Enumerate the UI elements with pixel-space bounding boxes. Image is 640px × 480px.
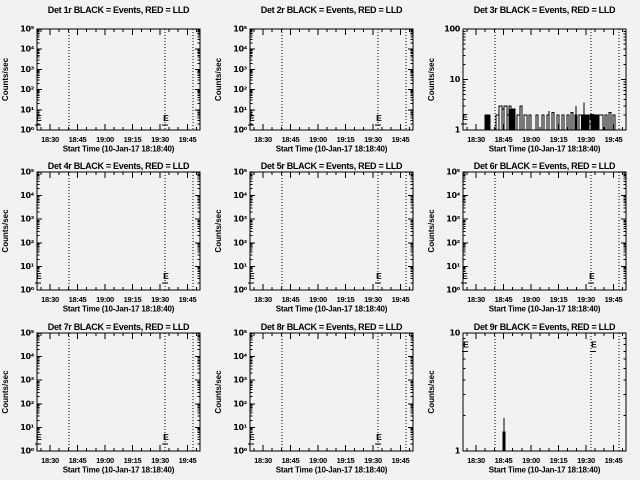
y-tick-label: 10⁵	[446, 168, 461, 177]
y-tick-label: 10⁰	[233, 447, 248, 456]
x-tick-label: 18:30	[467, 456, 485, 465]
eclipse-marker-label: E	[163, 271, 169, 281]
eclipse-marker: E	[248, 432, 255, 444]
y-axis-label: Counts/sec	[427, 209, 436, 253]
eclipse-marker-label: E	[36, 432, 42, 442]
x-tick-label: 19:30	[364, 456, 382, 465]
x-tick-label: 18:45	[69, 295, 87, 304]
eclipse-marker: E	[590, 339, 597, 351]
y-tick-label: 10	[449, 75, 460, 84]
eclipse-marker: E	[461, 271, 468, 283]
panel-title: Det 1r BLACK = Events, RED = LLD	[48, 5, 190, 15]
x-tick-label: 19:30	[364, 135, 382, 144]
events-filled-block	[509, 109, 515, 130]
x-tick-label: 19:30	[151, 295, 169, 304]
panel-title: Det 2r BLACK = Events, RED = LLD	[261, 5, 403, 15]
y-tick-label: 10⁰	[20, 447, 35, 456]
x-tick-label: 19:15	[124, 295, 142, 304]
x-axis-label: Start Time (10-Jan-17 18:18:40)	[276, 145, 388, 154]
eclipse-marker: E	[35, 113, 42, 125]
y-tick-label: 10¹	[233, 423, 248, 432]
y-tick-label: 10⁴	[20, 45, 35, 54]
y-tick-label: 10⁵	[233, 25, 248, 34]
x-axis-label: Start Time (10-Jan-17 18:18:40)	[276, 305, 388, 314]
y-tick-label: 10⁴	[20, 191, 35, 200]
eclipse-marker-label: E	[376, 432, 382, 442]
x-tick-label: 18:30	[41, 456, 59, 465]
x-tick-label: 18:30	[41, 295, 59, 304]
x-tick-label: 18:45	[495, 135, 513, 144]
y-tick-label: 10³	[233, 65, 248, 74]
eclipse-marker: E	[162, 432, 169, 444]
eclipse-marker-label: E	[249, 113, 255, 123]
y-tick-label: 10⁵	[20, 25, 35, 34]
x-tick-label: 18:45	[282, 295, 300, 304]
y-tick-label: 10¹	[233, 105, 248, 114]
y-tick-label: 1	[455, 447, 461, 456]
eclipse-marker: E	[248, 113, 255, 125]
x-tick-label: 19:00	[522, 295, 540, 304]
x-tick-label: 19:15	[124, 456, 142, 465]
eclipse-marker-label: E	[376, 271, 382, 281]
y-tick-label: 10⁰	[233, 126, 248, 135]
eclipse-marker: E	[375, 113, 382, 125]
x-tick-label: 19:00	[96, 456, 114, 465]
y-tick-label: 10⁴	[233, 191, 248, 200]
x-tick-label: 19:00	[522, 135, 540, 144]
y-tick-label: 10³	[20, 65, 35, 74]
y-tick-label: 10¹	[233, 262, 248, 271]
x-tick-label: 19:45	[605, 135, 623, 144]
y-tick-label: 10³	[446, 215, 461, 224]
eclipse-marker: E	[162, 113, 169, 125]
eclipse-marker-label: E	[163, 113, 169, 123]
eclipse-marker-label: E	[463, 339, 469, 349]
y-tick-label: 10⁵	[233, 329, 248, 338]
x-tick-label: 19:00	[309, 456, 327, 465]
x-tick-label: 19:30	[364, 295, 382, 304]
x-tick-label: 19:00	[96, 135, 114, 144]
y-tick-label: 10³	[233, 376, 248, 385]
x-axis-label: Start Time (10-Jan-17 18:18:40)	[276, 466, 388, 475]
x-tick-label: 19:15	[550, 135, 568, 144]
panel-title: Det 4r BLACK = Events, RED = LLD	[48, 161, 190, 171]
panel-title: Det 3r BLACK = Events, RED = LLD	[474, 5, 616, 15]
plots-canvas: EEDet 1r BLACK = Events, RED = LLD18:301…	[0, 0, 640, 480]
y-tick-label: 10¹	[20, 262, 35, 271]
x-tick-label: 19:30	[577, 456, 595, 465]
y-tick-label: 10³	[20, 376, 35, 385]
panel-title: Det 5r BLACK = Events, RED = LLD	[261, 161, 403, 171]
y-tick-label: 10³	[233, 215, 248, 224]
x-tick-label: 19:15	[550, 295, 568, 304]
y-tick-label: 10⁰	[233, 286, 248, 295]
y-tick-label: 10⁵	[20, 168, 35, 177]
x-tick-label: 19:30	[577, 135, 595, 144]
y-tick-label: 10²	[233, 85, 248, 94]
y-tick-label: 1	[455, 126, 461, 135]
y-tick-label: 10²	[233, 399, 248, 408]
y-tick-label: 100	[444, 25, 461, 34]
y-tick-label: 10²	[20, 85, 35, 94]
eclipse-marker-label: E	[249, 432, 255, 442]
eclipse-marker: E	[588, 271, 595, 283]
x-tick-label: 18:30	[254, 456, 272, 465]
x-axis-label: Start Time (10-Jan-17 18:18:40)	[63, 145, 175, 154]
panel-title: Det 8r BLACK = Events, RED = LLD	[261, 322, 403, 332]
y-tick-label: 10	[449, 329, 460, 338]
eclipse-marker-label: E	[462, 112, 468, 122]
x-tick-label: 18:45	[282, 456, 300, 465]
eclipse-marker-label: E	[591, 339, 597, 349]
y-tick-label: 10⁴	[233, 45, 248, 54]
y-axis-label: Counts/sec	[214, 370, 223, 414]
panel-title: Det 9r BLACK = Events, RED = LLD	[474, 322, 616, 332]
y-tick-label: 10²	[20, 399, 35, 408]
eclipse-marker-label: E	[462, 271, 468, 281]
panel-det-3r: EEDet 3r BLACK = Events, RED = LLD18:301…	[427, 5, 626, 154]
y-axis-label: Counts/sec	[1, 209, 10, 253]
y-tick-label: 10³	[20, 215, 35, 224]
x-tick-label: 19:15	[124, 135, 142, 144]
y-tick-label: 10⁴	[233, 352, 248, 361]
x-tick-label: 19:30	[151, 456, 169, 465]
x-tick-label: 18:30	[254, 295, 272, 304]
panel-det-9r: EEDet 9r BLACK = Events, RED = LLD18:301…	[427, 322, 626, 475]
x-tick-label: 18:45	[69, 135, 87, 144]
eclipse-marker: E	[461, 112, 468, 124]
x-tick-label: 19:00	[309, 135, 327, 144]
eclipse-marker-label: E	[36, 271, 42, 281]
x-tick-label: 19:45	[179, 135, 197, 144]
panel-det-6r: EEDet 6r BLACK = Events, RED = LLD18:301…	[427, 161, 626, 314]
x-tick-label: 19:45	[605, 456, 623, 465]
panel-det-2r: EEDet 2r BLACK = Events, RED = LLD18:301…	[214, 5, 413, 154]
eclipse-marker: E	[35, 432, 42, 444]
y-axis-label: Counts/sec	[427, 370, 436, 414]
y-axis-label: Counts/sec	[214, 57, 223, 101]
x-tick-label: 19:45	[392, 456, 410, 465]
x-tick-label: 18:45	[69, 456, 87, 465]
x-tick-label: 18:30	[467, 295, 485, 304]
y-tick-label: 10⁴	[446, 191, 461, 200]
y-tick-label: 10⁵	[233, 168, 248, 177]
y-tick-label: 10⁵	[20, 329, 35, 338]
x-axis-label: Start Time (10-Jan-17 18:18:40)	[489, 305, 601, 314]
x-tick-label: 19:15	[337, 135, 355, 144]
x-tick-label: 18:30	[254, 135, 272, 144]
eclipse-marker-label: E	[376, 113, 382, 123]
eclipse-marker: E	[375, 271, 382, 283]
x-tick-label: 19:15	[337, 295, 355, 304]
y-tick-label: 10⁰	[20, 286, 35, 295]
x-tick-label: 18:45	[495, 295, 513, 304]
eclipse-marker-label: E	[589, 271, 595, 281]
x-tick-label: 19:30	[151, 135, 169, 144]
x-tick-label: 19:45	[179, 295, 197, 304]
eclipse-marker: E	[35, 271, 42, 283]
panel-title: Det 7r BLACK = Events, RED = LLD	[48, 322, 190, 332]
detector-rates-figure: EEDet 1r BLACK = Events, RED = LLD18:301…	[0, 0, 640, 480]
panel-det-5r: EEDet 5r BLACK = Events, RED = LLD18:301…	[214, 161, 413, 314]
panel-det-8r: EEDet 8r BLACK = Events, RED = LLD18:301…	[214, 322, 413, 475]
eclipse-marker-label: E	[249, 271, 255, 281]
eclipse-marker: E	[375, 432, 382, 444]
x-tick-label: 19:45	[392, 135, 410, 144]
events-filled-block	[485, 115, 490, 130]
x-tick-label: 19:45	[392, 295, 410, 304]
y-axis-label: Counts/sec	[427, 57, 436, 101]
y-axis-label: Counts/sec	[1, 370, 10, 414]
y-tick-label: 10²	[233, 238, 248, 247]
x-tick-label: 19:30	[577, 295, 595, 304]
x-axis-label: Start Time (10-Jan-17 18:18:40)	[63, 305, 175, 314]
y-tick-label: 10⁰	[446, 286, 461, 295]
y-tick-label: 10²	[20, 238, 35, 247]
eclipse-marker-label: E	[163, 432, 169, 442]
x-axis-label: Start Time (10-Jan-17 18:18:40)	[63, 466, 175, 475]
y-tick-label: 10¹	[20, 105, 35, 114]
panel-det-4r: EEDet 4r BLACK = Events, RED = LLD18:301…	[1, 161, 200, 314]
x-tick-label: 19:00	[522, 456, 540, 465]
panel-det-1r: EEDet 1r BLACK = Events, RED = LLD18:301…	[1, 5, 200, 154]
x-tick-label: 19:15	[337, 456, 355, 465]
y-tick-label: 10²	[446, 238, 461, 247]
x-tick-label: 19:45	[605, 295, 623, 304]
x-tick-label: 18:30	[41, 135, 59, 144]
x-axis-label: Start Time (10-Jan-17 18:18:40)	[489, 466, 601, 475]
eclipse-marker: E	[162, 271, 169, 283]
x-tick-label: 19:15	[550, 456, 568, 465]
x-axis-label: Start Time (10-Jan-17 18:18:40)	[489, 145, 601, 154]
y-tick-label: 10¹	[446, 262, 461, 271]
x-tick-label: 18:45	[495, 456, 513, 465]
panel-title: Det 6r BLACK = Events, RED = LLD	[474, 161, 616, 171]
x-tick-label: 19:00	[96, 295, 114, 304]
x-tick-label: 19:00	[309, 295, 327, 304]
x-tick-label: 18:30	[467, 135, 485, 144]
eclipse-marker-label: E	[589, 112, 595, 122]
y-axis-label: Counts/sec	[1, 57, 10, 101]
eclipse-marker: E	[248, 271, 255, 283]
eclipse-marker-label: E	[36, 113, 42, 123]
y-tick-label: 10⁰	[20, 126, 35, 135]
y-tick-label: 10¹	[20, 423, 35, 432]
events-filled-block	[581, 115, 589, 130]
x-tick-label: 19:45	[179, 456, 197, 465]
y-axis-label: Counts/sec	[214, 209, 223, 253]
panel-det-7r: EEDet 7r BLACK = Events, RED = LLD18:301…	[1, 322, 200, 475]
y-tick-label: 10⁴	[20, 352, 35, 361]
x-tick-label: 18:45	[282, 135, 300, 144]
